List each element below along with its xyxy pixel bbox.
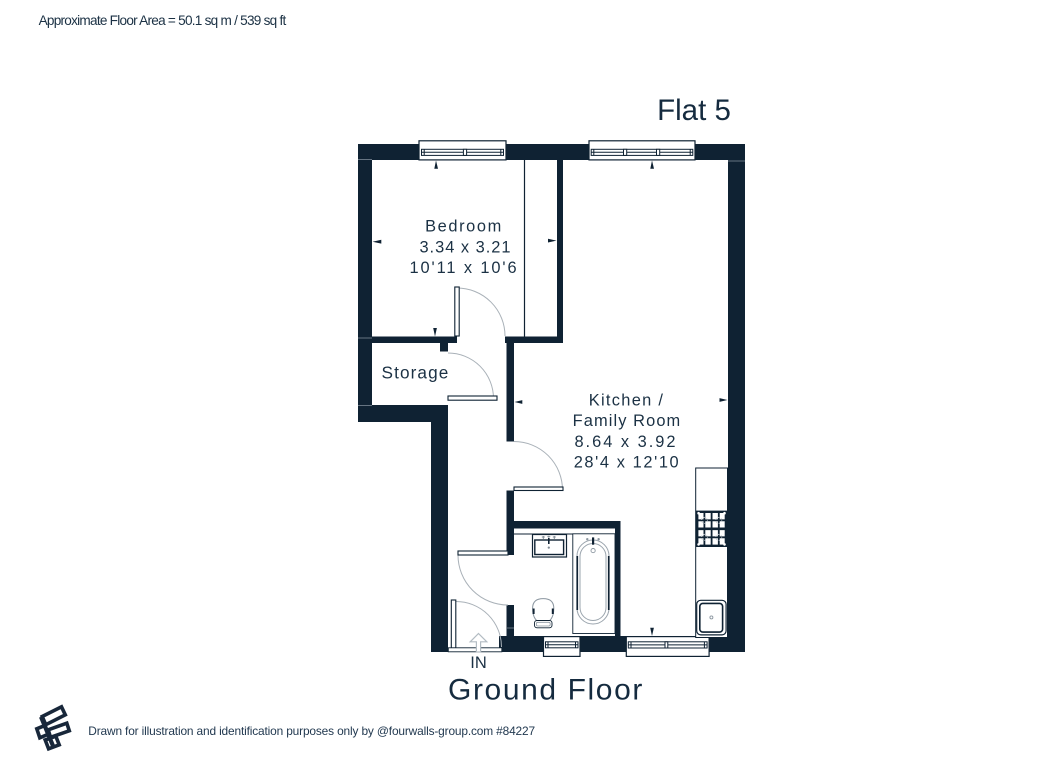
svg-text:Storage: Storage	[382, 363, 450, 383]
svg-text:Kitchen /: Kitchen /	[589, 391, 664, 409]
svg-text:Ground Floor: Ground Floor	[448, 674, 644, 707]
svg-text:10'11 x 10'6: 10'11 x 10'6	[410, 259, 519, 277]
svg-text:Bedroom: Bedroom	[425, 218, 503, 236]
svg-text:Drawn for illustration and ide: Drawn for illustration and identificatio…	[88, 724, 535, 738]
svg-text:3.34 x 3.21: 3.34 x 3.21	[419, 239, 511, 257]
svg-text:8.64 x 3.92: 8.64 x 3.92	[574, 433, 677, 451]
svg-text:Family Room: Family Room	[573, 412, 682, 430]
svg-text:Flat 5: Flat 5	[657, 94, 731, 127]
svg-text:28'4 x 12'10: 28'4 x 12'10	[574, 454, 681, 472]
svg-text:Approximate Floor Area = 50.1: Approximate Floor Area = 50.1 sq m / 539…	[39, 13, 287, 28]
svg-text:IN: IN	[470, 654, 487, 672]
